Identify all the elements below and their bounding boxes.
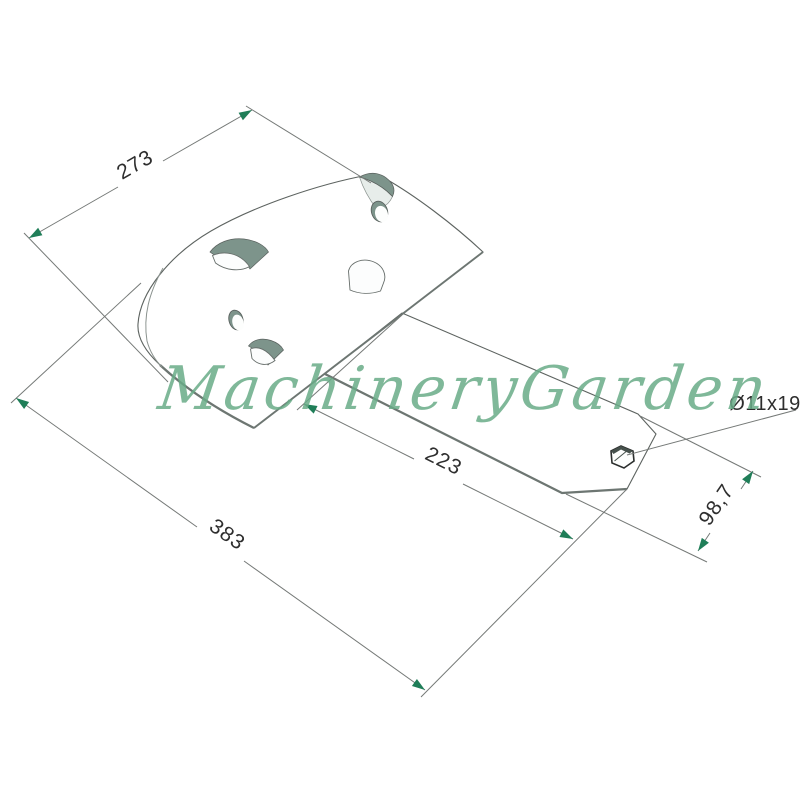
technical-drawing: 273 383 223 98,7 Ø11x19 MachineryGarden <box>0 0 800 800</box>
part-render <box>138 173 656 493</box>
arrow-987-bottom <box>694 538 708 554</box>
ext-line-shared-right <box>421 489 627 697</box>
arrow-383-right <box>412 679 428 694</box>
slot-hole-upper <box>210 239 269 270</box>
arrow-383-left <box>14 394 30 409</box>
dim-line-223 <box>304 404 573 539</box>
dim-label-98-7: 98,7 <box>694 480 738 530</box>
arrow-223-right <box>559 529 574 543</box>
bolt-hole-lower <box>227 309 246 332</box>
ext-line-273-right <box>246 106 371 183</box>
dim-label-273: 273 <box>113 145 157 184</box>
arrow-273-left <box>27 228 43 242</box>
watermark: MachineryGarden <box>153 354 774 424</box>
hex-hole <box>611 446 634 468</box>
d-hole <box>349 260 385 293</box>
dim-label-223: 223 <box>421 442 465 480</box>
drawing-canvas: 273 383 223 98,7 Ø11x19 MachineryGarden <box>0 0 800 800</box>
arrow-273-right <box>239 106 255 120</box>
ext-line-383-left <box>11 283 141 403</box>
dim-label-383: 383 <box>205 514 249 555</box>
ext-line-987-bottom <box>566 494 707 562</box>
ext-line-273-left <box>24 233 168 382</box>
